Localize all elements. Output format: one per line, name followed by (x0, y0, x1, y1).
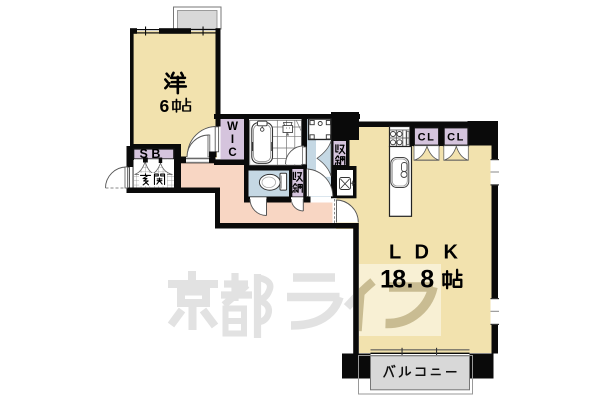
svg-text:K: K (444, 242, 459, 264)
svg-text:CL: CL (447, 132, 465, 144)
svg-text:SB: SB (140, 147, 164, 161)
svg-text:W: W (227, 121, 238, 133)
svg-text:L: L (389, 242, 401, 264)
svg-text:C: C (228, 147, 236, 159)
svg-text:I: I (231, 134, 234, 146)
svg-text:D: D (415, 242, 429, 264)
svg-text:8: 8 (420, 266, 434, 294)
svg-text:CL: CL (418, 132, 436, 144)
svg-text:.: . (407, 266, 414, 294)
svg-text:6: 6 (160, 96, 170, 116)
svg-text:8: 8 (392, 266, 406, 294)
